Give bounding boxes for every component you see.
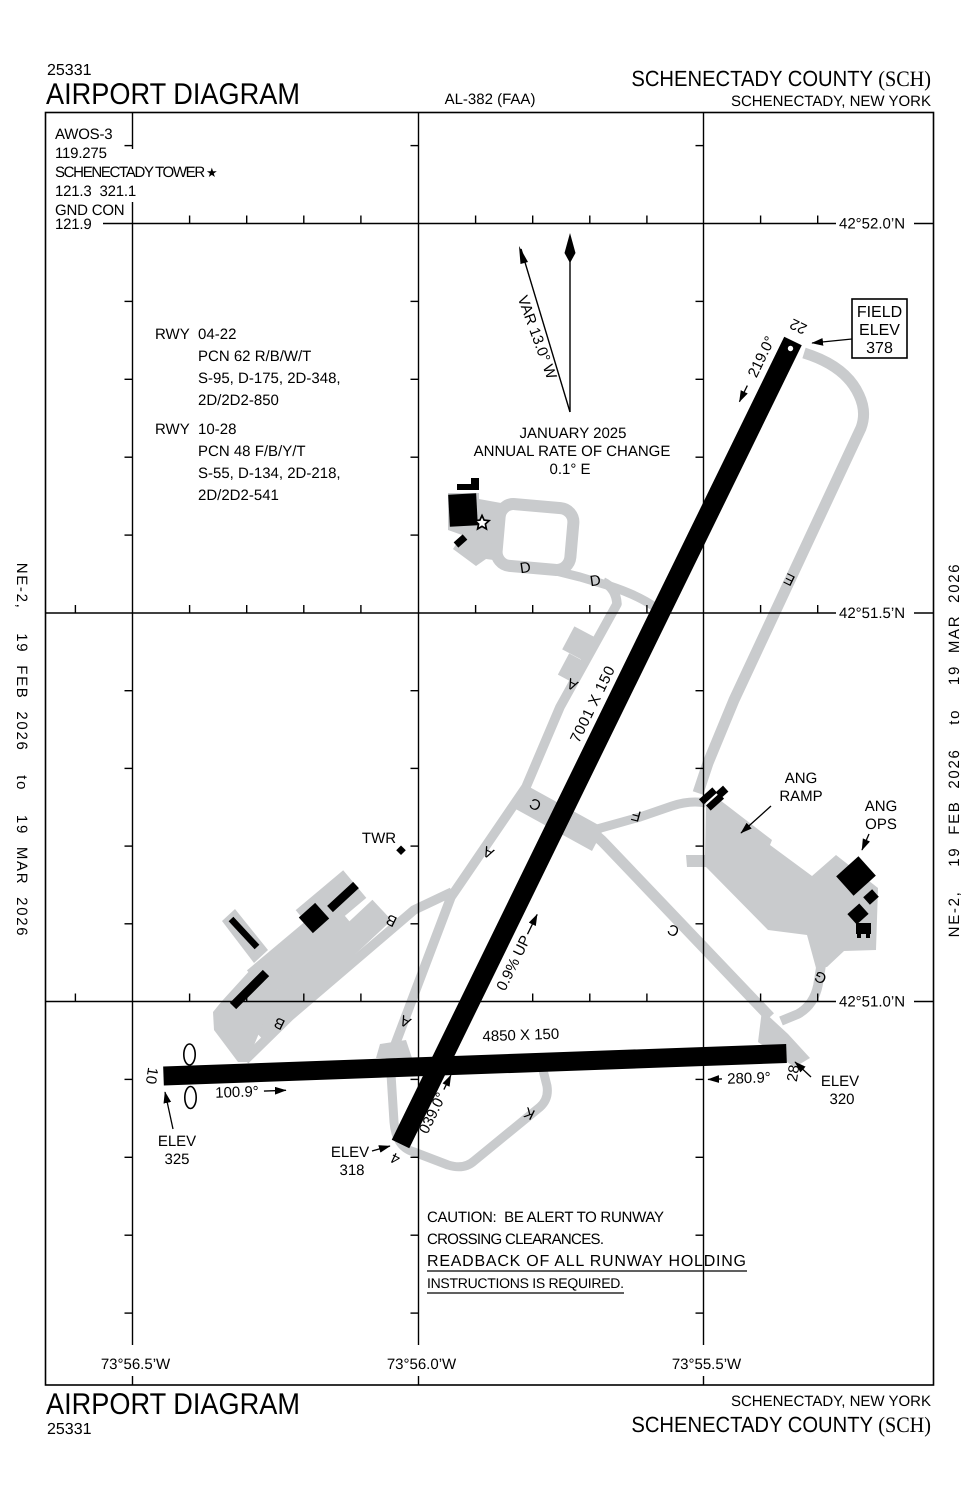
svg-text:SCHENECTADY TOWER: SCHENECTADY TOWER	[55, 164, 205, 181]
svg-text:119.275: 119.275	[55, 145, 107, 162]
svg-text:25331: 25331	[47, 1421, 92, 1438]
svg-text:4850 X 150: 4850 X 150	[482, 1026, 559, 1046]
svg-text:JANUARY 2025: JANUARY 2025	[519, 425, 626, 442]
svg-text:SCHENECTADY COUNTY (SCH): SCHENECTADY COUNTY (SCH)	[631, 66, 931, 91]
svg-text:RAMP: RAMP	[779, 788, 822, 805]
svg-text:AWOS-3: AWOS-3	[55, 126, 112, 143]
svg-text:320: 320	[829, 1091, 854, 1108]
svg-text:CAUTION: BE ALERT TO RUNWAY: CAUTION: BE ALERT TO RUNWAY	[427, 1209, 664, 1226]
svg-text:ELEV: ELEV	[158, 1133, 196, 1150]
svg-text:42°51.5’N: 42°51.5’N	[839, 605, 905, 622]
svg-text:NE-2, 19 FEB 2026 to 19 MAR: NE-2, 19 FEB 2026 to 19 MAR 2026	[946, 563, 963, 938]
svg-text:RWY 10-28: RWY 10-28	[155, 421, 236, 438]
svg-text:ANG: ANG	[785, 770, 818, 787]
svg-text:READBACK OF ALL RUNWAY HOLDING: READBACK OF ALL RUNWAY HOLDING	[427, 1253, 746, 1270]
svg-text:325: 325	[164, 1151, 189, 1168]
svg-text:AIRPORT DIAGRAM: AIRPORT DIAGRAM	[46, 78, 300, 111]
svg-text:TWR: TWR	[362, 830, 396, 847]
svg-text:ANNUAL RATE OF CHANGE: ANNUAL RATE OF CHANGE	[474, 443, 671, 460]
svg-text:INSTRUCTIONS IS REQUIRED.: INSTRUCTIONS IS REQUIRED.	[427, 1275, 624, 1291]
svg-text:ANG: ANG	[865, 798, 898, 815]
svg-text:ELEV: ELEV	[821, 1073, 859, 1090]
svg-text:121.3 321.1: 121.3 321.1	[55, 183, 136, 200]
svg-text:FIELD: FIELD	[857, 304, 902, 321]
svg-text:42°51.0’N: 42°51.0’N	[839, 994, 905, 1011]
svg-text:RWY 04-22: RWY 04-22	[155, 326, 236, 343]
svg-text:OPS: OPS	[865, 816, 897, 833]
svg-text:NE-2, 19 FEB 2026 to 19 MAR: NE-2, 19 FEB 2026 to 19 MAR 2026	[13, 563, 30, 938]
svg-text:2D/2D2-541: 2D/2D2-541	[198, 487, 279, 504]
svg-text:10: 10	[142, 1066, 161, 1085]
svg-text:SCHENECTADY COUNTY (SCH): SCHENECTADY COUNTY (SCH)	[631, 1412, 931, 1437]
svg-text:S-55, D-134, 2D-218,: S-55, D-134, 2D-218,	[198, 465, 341, 482]
svg-text:121.9: 121.9	[55, 216, 92, 233]
svg-text:ELEV: ELEV	[331, 1144, 369, 1161]
svg-text:CROSSING CLEARANCES.: CROSSING CLEARANCES.	[427, 1231, 604, 1248]
svg-text:318: 318	[339, 1162, 364, 1179]
svg-text:SCHENECTADY, NEW YORK: SCHENECTADY, NEW YORK	[731, 1393, 931, 1410]
svg-text:SCHENECTADY, NEW YORK: SCHENECTADY, NEW YORK	[731, 93, 931, 110]
svg-text:25331: 25331	[47, 62, 92, 79]
svg-text:73°55.5’W: 73°55.5’W	[672, 1356, 742, 1373]
svg-text:S-95, D-175, 2D-348,: S-95, D-175, 2D-348,	[198, 370, 341, 387]
svg-text:73°56.0’W: 73°56.0’W	[387, 1356, 457, 1373]
svg-text:PCN 62 R/B/W/T: PCN 62 R/B/W/T	[198, 348, 311, 365]
svg-text:42°52.0’N: 42°52.0’N	[839, 216, 905, 233]
svg-text:100.9°: 100.9°	[215, 1083, 259, 1102]
svg-text:2D/2D2-850: 2D/2D2-850	[198, 392, 279, 409]
svg-text:378: 378	[866, 340, 893, 357]
svg-text:★: ★	[206, 165, 217, 180]
svg-text:ELEV: ELEV	[859, 322, 900, 339]
svg-text:280.9°: 280.9°	[727, 1069, 771, 1088]
svg-text:AIRPORT DIAGRAM: AIRPORT DIAGRAM	[46, 1388, 300, 1421]
svg-text:AL-382 (FAA): AL-382 (FAA)	[445, 91, 536, 108]
svg-text:PCN 48 F/B/Y/T: PCN 48 F/B/Y/T	[198, 443, 306, 460]
svg-text:73°56.5’W: 73°56.5’W	[101, 1356, 171, 1373]
svg-text:0.1° E: 0.1° E	[549, 461, 590, 478]
